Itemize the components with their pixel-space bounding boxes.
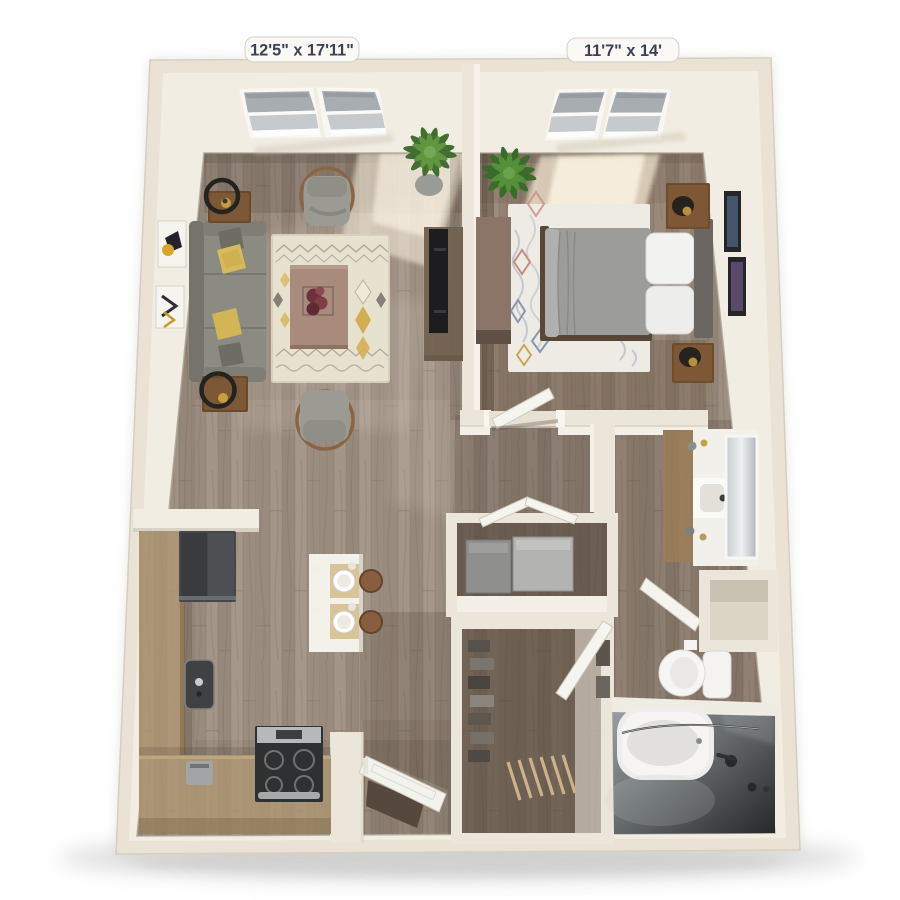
svg-text:12'5" x 17'11": 12'5" x 17'11" — [250, 42, 354, 60]
svg-text:11'7" x 14': 11'7" x 14' — [584, 42, 662, 60]
